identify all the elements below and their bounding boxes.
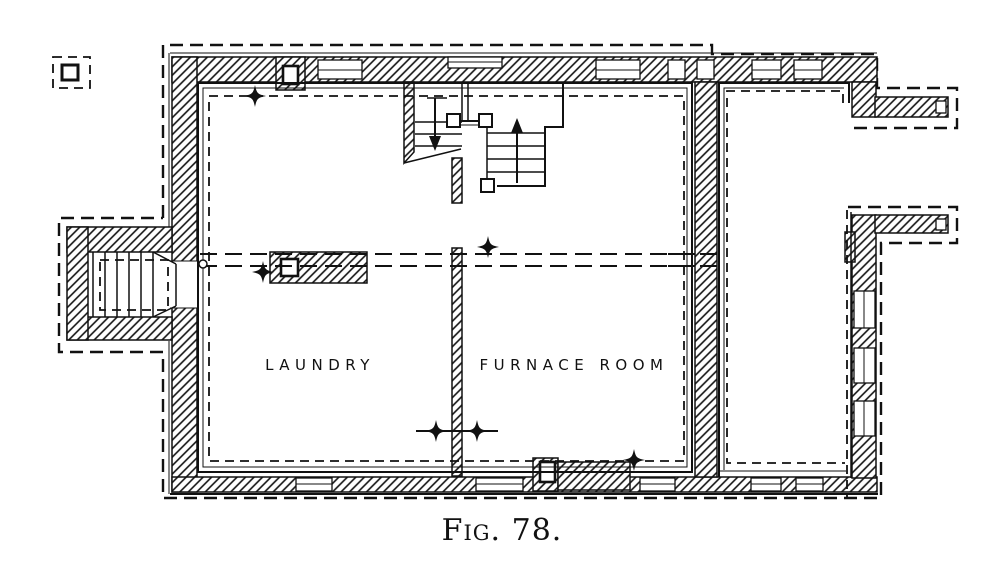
post-marker-icon — [425, 420, 447, 442]
stair-down-arrow-icon — [427, 98, 447, 151]
partition-wall — [452, 248, 462, 476]
chimney-flue — [281, 259, 298, 276]
girder-bearing-ticks — [668, 254, 695, 266]
basement-windows — [296, 57, 946, 491]
masonry-walls — [67, 57, 948, 492]
pier-symbol-core — [62, 65, 78, 80]
laundry-room-label: LAUNDRY — [265, 356, 375, 374]
figure-78-basement-plan: LAUNDRY FURNACE ROOM Fig. 78. — [0, 0, 1000, 564]
south-wall-footing-block — [558, 462, 630, 490]
east-wall-upper — [852, 82, 876, 117]
areaway-treads — [93, 252, 153, 317]
porch-footing-lower-end — [936, 219, 946, 230]
newel-post — [447, 114, 460, 127]
areaway-door-opening — [170, 261, 198, 308]
interior-dividing-wall — [695, 82, 717, 477]
door-pivot-icon — [199, 260, 207, 268]
stair-up-arrow-icon — [511, 118, 523, 183]
furnace-room-label: FURNACE ROOM — [480, 356, 669, 374]
partition-wall-upper-strip — [452, 158, 462, 203]
detached-pier-symbol — [53, 57, 90, 88]
porch-footing-upper-end — [936, 101, 946, 113]
floor-plan-drawing: LAUNDRY FURNACE ROOM Fig. 78. — [0, 0, 1000, 564]
post-marker-icon — [466, 420, 488, 442]
right-room-dashed — [727, 91, 845, 463]
interior-dashed-lines — [100, 91, 847, 497]
east-windows — [854, 291, 875, 436]
newel-post — [479, 114, 492, 127]
areaway-west-wall — [67, 227, 88, 340]
areaway-dashed — [100, 260, 168, 310]
figure-caption: Fig. 78. — [442, 513, 563, 548]
north-pier-flue — [283, 66, 298, 84]
stair-side-wall — [404, 82, 414, 163]
main-stair — [404, 83, 563, 192]
newel-post — [481, 179, 494, 192]
